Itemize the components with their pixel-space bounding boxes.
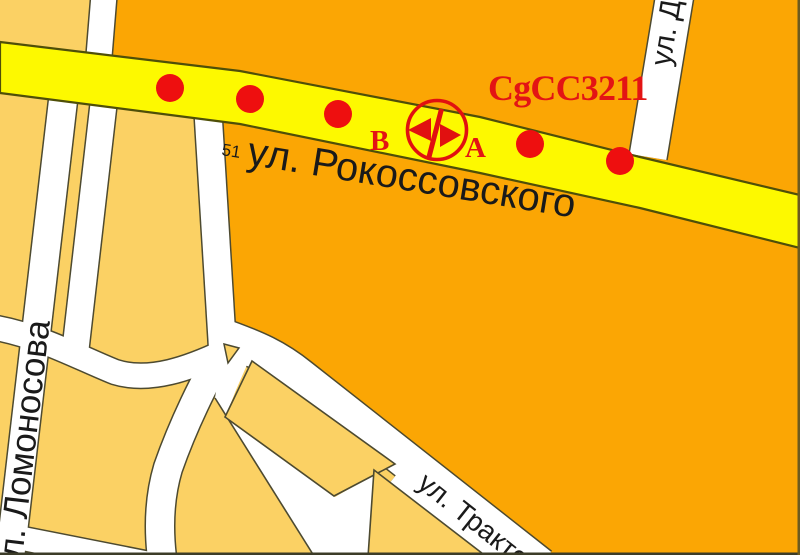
- svg-text:А: А: [465, 132, 486, 164]
- svg-text:CgCC3211: CgCC3211: [488, 68, 648, 108]
- svg-text:51: 51: [220, 140, 242, 162]
- svg-text:В: В: [370, 125, 389, 157]
